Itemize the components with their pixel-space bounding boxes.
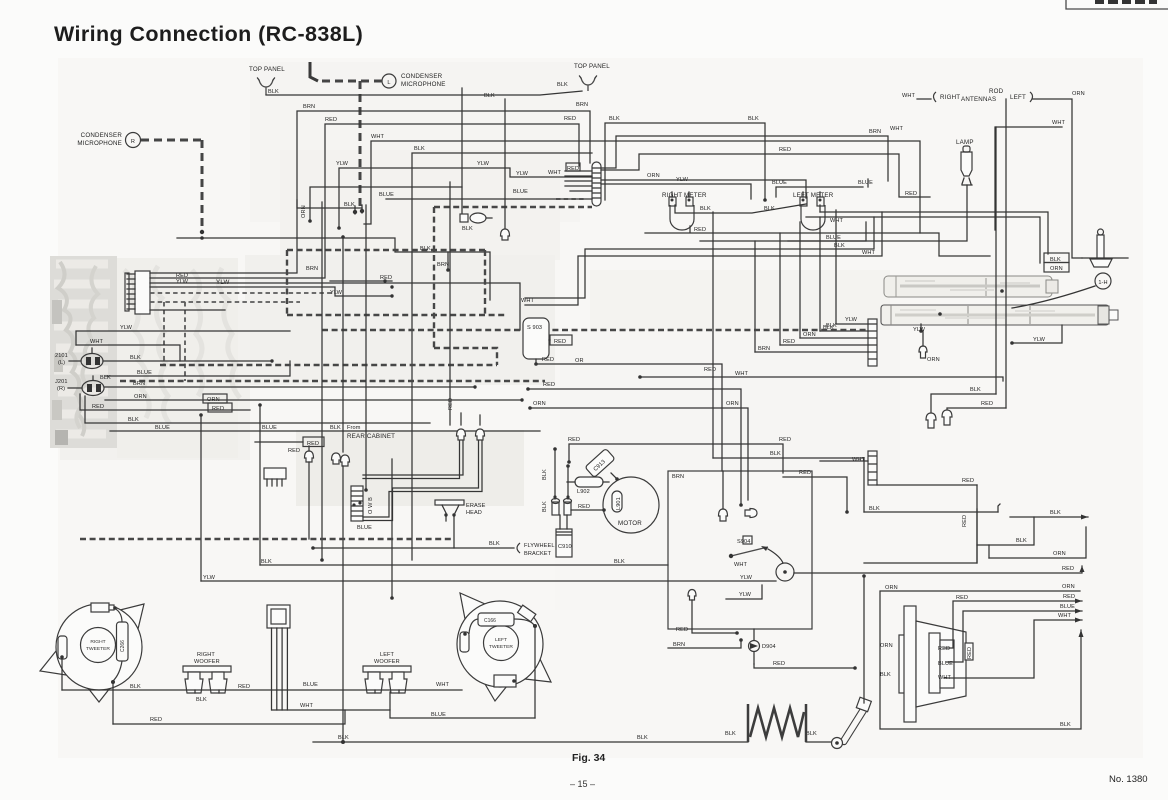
svg-text:WOOFER: WOOFER [194,659,220,665]
svg-text:RIGHT: RIGHT [940,94,960,101]
svg-text:YLW: YLW [1033,337,1046,343]
svg-text:BLK: BLK [770,451,781,457]
svg-text:(R): (R) [57,386,65,392]
svg-text:BLK: BLK [748,116,759,122]
svg-text:ORN: ORN [1062,584,1075,590]
svg-text:RED: RED [981,401,993,407]
svg-text:WHT: WHT [890,126,904,132]
svg-text:RED: RED [1063,594,1075,600]
svg-text:WHT: WHT [521,298,535,304]
svg-text:BLUE: BLUE [1060,604,1075,610]
svg-text:RED: RED [779,147,791,153]
svg-text:BLUE: BLUE [772,180,787,186]
svg-text:J201: J201 [55,379,68,385]
svg-text:BLK: BLK [484,93,495,99]
svg-text:BLK: BLK [806,731,817,737]
svg-text:REAR CABINET: REAR CABINET [347,433,395,440]
svg-text:RED: RED [150,717,162,723]
svg-text:ORN: ORN [1053,551,1066,557]
svg-text:BLUE: BLUE [357,525,372,531]
svg-text:BRN: BRN [306,266,318,272]
svg-text:ORN: ORN [880,643,893,649]
svg-text:WHT: WHT [1052,120,1066,126]
svg-text:RED: RED [92,404,104,410]
svg-text:ANTENNAS: ANTENNAS [961,96,996,103]
svg-text:ORN: ORN [1072,91,1085,97]
svg-text:RED: RED [578,504,590,510]
svg-text:ORN: ORN [301,205,307,218]
svg-text:WHT: WHT [436,682,450,688]
svg-text:ORN: ORN [647,173,660,179]
svg-text:L902: L902 [577,489,590,495]
svg-text:RED: RED [962,515,968,527]
svg-text:WHT: WHT [548,170,562,176]
svg-text:From: From [347,425,361,431]
svg-text:RED: RED [288,448,300,454]
svg-text:RED: RED [380,275,392,281]
svg-text:RED: RED [554,339,566,345]
svg-text:RED: RED [238,684,250,690]
svg-text:Wiring Connection (RC-838L): Wiring Connection (RC-838L) [54,22,363,46]
svg-text:RED: RED [694,227,706,233]
svg-text:ORN: ORN [1050,266,1063,272]
svg-text:BLK: BLK [542,501,548,512]
svg-text:RED: RED [325,117,337,123]
svg-text:MICROPHONE: MICROPHONE [401,81,446,88]
svg-text:BLUE: BLUE [858,180,873,186]
svg-text:BLK: BLK [344,202,355,208]
svg-text:ORN: ORN [726,401,739,407]
svg-text:YLW: YLW [120,325,133,331]
svg-text:BRN: BRN [437,262,449,268]
svg-text:BLK: BLK [268,89,279,95]
svg-text:RED: RED [704,367,716,373]
svg-text:WHT: WHT [1058,613,1072,619]
svg-text:BLK: BLK [1060,722,1071,728]
svg-text:ORN: ORN [207,397,220,403]
svg-text:BLK: BLK [637,735,648,741]
svg-text:BRN: BRN [869,129,881,135]
svg-text:ROD: ROD [989,88,1004,95]
svg-text:BLK: BLK [1016,538,1027,544]
svg-text:YLW: YLW [203,575,216,581]
svg-text:BLK: BLK [764,206,775,212]
svg-text:RIGHT: RIGHT [197,652,215,658]
svg-text:BLK: BLK [414,146,425,152]
svg-text:BRACKET: BRACKET [524,551,552,557]
svg-text:YLW: YLW [913,327,926,333]
svg-text:HEAD: HEAD [466,510,482,516]
svg-text:R: R [131,139,135,145]
svg-text:ORN: ORN [533,401,546,407]
svg-text:ERASE: ERASE [466,503,486,509]
svg-text:WHT: WHT [734,562,748,568]
svg-text:BLK: BLK [1050,510,1061,516]
svg-text:BLK: BLK [130,684,141,690]
svg-text:WHT: WHT [90,339,104,345]
svg-text:WHT: WHT [300,703,314,709]
svg-text:ORN: ORN [803,332,816,338]
svg-text:L901: L901 [616,497,622,510]
svg-text:1-H: 1-H [1098,280,1107,286]
svg-text:RED: RED [1062,566,1074,572]
svg-text:YLW: YLW [176,279,189,285]
svg-text:BLUE: BLUE [513,189,528,195]
svg-text:TOP PANEL: TOP PANEL [249,66,285,73]
svg-text:LEFT: LEFT [380,652,395,658]
svg-text:BLK: BLK [489,541,500,547]
svg-text:YLW: YLW [845,317,858,323]
svg-text:WHT: WHT [902,93,916,99]
svg-text:BRN: BRN [303,104,315,110]
svg-text:No. 1380: No. 1380 [1109,774,1148,785]
svg-text:RED: RED [564,116,576,122]
svg-text:BLK: BLK [700,206,711,212]
svg-text:BLK: BLK [100,375,111,381]
svg-text:RED: RED [779,437,791,443]
svg-text:OR: OR [575,358,584,364]
svg-text:BLUE: BLUE [137,370,152,376]
svg-text:RED: RED [543,382,555,388]
svg-text:BLUE: BLUE [262,425,277,431]
svg-text:MOTOR: MOTOR [618,520,642,527]
svg-text:RED: RED [212,406,224,412]
svg-text:FLYWHEEL: FLYWHEEL [524,543,555,549]
svg-text:BLK: BLK [970,387,981,393]
svg-text:TWEETER: TWEETER [86,646,110,652]
svg-text:D904: D904 [762,644,776,650]
svg-text:WHT: WHT [735,371,749,377]
svg-text:RED: RED [905,191,917,197]
svg-text:C910: C910 [558,544,572,550]
svg-text:TWEETER: TWEETER [489,644,513,650]
svg-text:YLW: YLW [516,171,529,177]
svg-text:ORN: ORN [134,394,147,400]
svg-text:BLK: BLK [609,116,620,122]
svg-text:BLUE: BLUE [431,712,446,718]
svg-text:YLW: YLW [330,290,343,296]
svg-text:BLK: BLK [880,672,891,678]
svg-text:BLUE: BLUE [379,192,394,198]
svg-text:BRN: BRN [576,102,588,108]
svg-text:RED: RED [962,478,974,484]
svg-text:WHT: WHT [830,218,844,224]
svg-text:BLK: BLK [128,417,139,423]
svg-text:YLW: YLW [336,161,349,167]
svg-text:YLW: YLW [477,161,490,167]
svg-text:LEFT: LEFT [1010,94,1026,101]
svg-text:(L): (L) [58,360,65,366]
svg-text:ORN: ORN [885,585,898,591]
svg-text:WHT: WHT [371,134,385,140]
svg-text:S904: S904 [737,539,750,545]
svg-text:BLK: BLK [542,469,548,480]
svg-text:BRN: BRN [672,474,684,480]
svg-text:RED: RED [448,398,454,410]
svg-text:– 15 –: – 15 – [570,779,595,789]
svg-text:BLK: BLK [826,323,837,329]
svg-text:LEFT METER: LEFT METER [793,192,834,199]
svg-text:RED: RED [568,437,580,443]
svg-text:BLK: BLK [196,697,207,703]
svg-text:RED: RED [967,647,973,659]
svg-text:RIGHT: RIGHT [90,639,105,645]
svg-text:BLK: BLK [130,355,141,361]
svg-text:CONDENSER: CONDENSER [401,73,443,80]
svg-text:MICROPHONE: MICROPHONE [77,140,122,147]
svg-text:O W B: O W B [368,497,374,514]
svg-text:2101: 2101 [55,353,68,359]
svg-text:YLW: YLW [676,177,689,183]
svg-text:BLUE: BLUE [303,682,318,688]
svg-text:RED: RED [956,595,968,601]
svg-text:BLK: BLK [614,559,625,565]
svg-text:BRN: BRN [758,346,770,352]
svg-text:WOOFER: WOOFER [374,659,400,665]
svg-text:BLK: BLK [869,506,880,512]
svg-text:L: L [387,80,390,86]
svg-text:BLK: BLK [725,731,736,737]
svg-text:C266: C266 [120,640,126,652]
svg-text:CONDENSER: CONDENSER [81,132,123,139]
svg-text:S 903: S 903 [527,325,542,331]
svg-text:RED: RED [542,357,554,363]
svg-text:BLK: BLK [330,425,341,431]
svg-text:BLK: BLK [261,559,272,565]
svg-text:ORN: ORN [927,357,940,363]
svg-text:YLW: YLW [739,592,752,598]
svg-text:RED: RED [676,627,688,633]
svg-text:TOP PANEL: TOP PANEL [574,63,610,70]
svg-text:RED: RED [773,661,785,667]
svg-text:BLUE: BLUE [155,425,170,431]
svg-text:BLK: BLK [557,82,568,88]
svg-text:LAMP: LAMP [956,139,974,146]
svg-text:YLW: YLW [740,575,753,581]
svg-text:RED: RED [307,441,319,447]
svg-text:Fig. 34: Fig. 34 [572,752,605,764]
svg-text:LEFT: LEFT [495,637,507,643]
svg-text:BLK: BLK [462,226,473,232]
svg-text:WHT: WHT [862,250,876,256]
svg-text:RED: RED [938,646,950,652]
svg-text:RED: RED [783,339,795,345]
svg-text:BRN: BRN [673,642,685,648]
svg-text:C166: C166 [484,618,496,624]
svg-text:BLUE: BLUE [826,235,841,241]
